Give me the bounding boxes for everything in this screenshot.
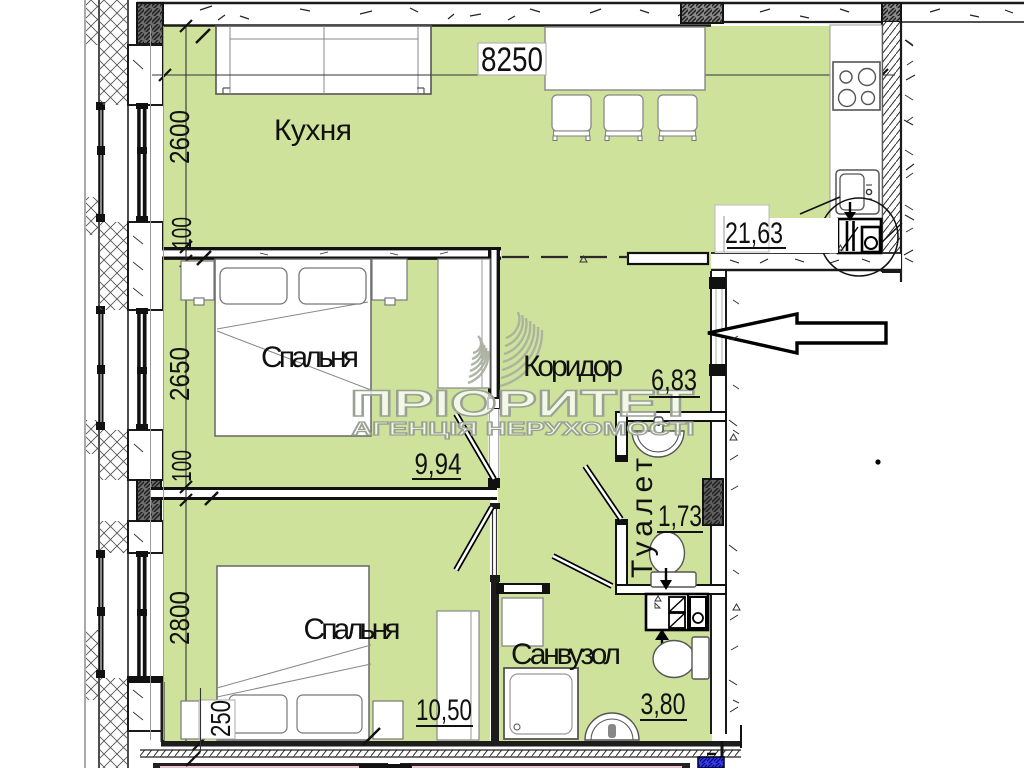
svg-text:100: 100 xyxy=(166,217,197,249)
svg-text:3,80: 3,80 xyxy=(641,688,686,721)
svg-text:Спальня: Спальня xyxy=(304,613,401,646)
svg-text:АГЕНЦІЯ НЕРУХОМОСТІ: АГЕНЦІЯ НЕРУХОМОСТІ xyxy=(352,419,695,439)
svg-text:Кухня: Кухня xyxy=(274,114,352,147)
svg-text:21,63: 21,63 xyxy=(725,217,783,250)
svg-text:Коридор: Коридор xyxy=(523,350,623,383)
svg-text:8250: 8250 xyxy=(481,41,543,79)
svg-text:ПРІОРИТЕТ: ПРІОРИТЕТ xyxy=(350,383,695,424)
svg-text:9,94: 9,94 xyxy=(415,448,462,481)
svg-text:2800: 2800 xyxy=(164,591,195,645)
svg-text:Санвузол: Санвузол xyxy=(511,638,621,671)
svg-text:2600: 2600 xyxy=(164,110,195,164)
svg-text:100: 100 xyxy=(166,450,197,482)
svg-text:1,73: 1,73 xyxy=(658,500,702,533)
svg-text:250: 250 xyxy=(205,700,236,737)
svg-text:10,50: 10,50 xyxy=(416,694,472,727)
svg-text:6,83: 6,83 xyxy=(651,364,697,397)
svg-text:Спальня: Спальня xyxy=(261,341,359,374)
svg-text:2650: 2650 xyxy=(164,347,195,401)
